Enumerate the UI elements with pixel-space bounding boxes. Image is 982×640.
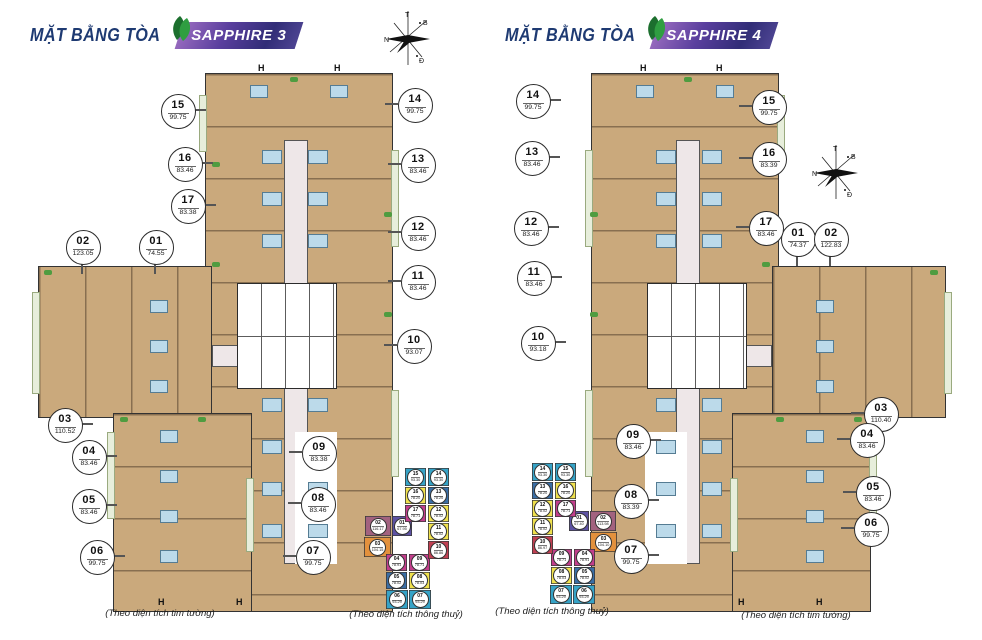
plan-core	[237, 283, 337, 389]
plan-bath	[262, 234, 282, 248]
tower-name: SAPPHIRE 4	[654, 22, 774, 49]
unit-circle-s4-16: 1683.39	[752, 142, 787, 177]
mini-unit-s4-05: 0578.02	[574, 567, 595, 584]
plan-core	[647, 283, 747, 389]
plan-bath	[702, 398, 722, 412]
mini-unit-number: 08	[417, 575, 423, 580]
plan-bath	[702, 524, 722, 538]
caption-thongthuy-s4: (Theo diện tích thông thuỷ)	[495, 606, 609, 617]
unit-area: 99.75	[87, 559, 108, 568]
leader-line	[388, 280, 401, 281]
mini-unit-s4-07: 0793.29	[550, 585, 572, 604]
plan-bath	[262, 150, 282, 164]
mini-unit-circle: 1178.02	[430, 523, 447, 540]
mini-unit-circle: 1678.20	[557, 482, 574, 499]
mini-unit-number: 09	[559, 552, 565, 557]
plan-bath	[308, 192, 328, 206]
leader-line	[283, 555, 296, 556]
unit-circle-s3-11: 1183.46	[401, 265, 436, 300]
mini-unit-circle: 0978.71	[411, 554, 428, 571]
mini-unit-s3-05: 0578.02	[386, 572, 407, 589]
unit-area: 99.75	[303, 559, 324, 568]
mini-unit-number: 07	[558, 589, 564, 594]
unit-area: 74.55	[146, 249, 167, 258]
unit-area: 99.75	[523, 103, 544, 112]
plan-bath	[806, 550, 824, 563]
unit-area: 93.18	[528, 345, 549, 354]
compass-label-d: Đ	[419, 58, 424, 65]
unit-circle-s3-17: 1783.38	[171, 189, 206, 224]
unit-area: 83.46	[408, 284, 429, 293]
mini-unit-number: 14	[540, 467, 546, 472]
mini-unit-number: 05	[582, 570, 588, 575]
mini-unit-number: 02	[600, 516, 606, 521]
mini-unit-number: 14	[436, 472, 442, 477]
hatch-mark: H	[334, 64, 341, 73]
mini-unit-circle: 1593.30	[557, 464, 574, 481]
unit-area: 83.46	[623, 443, 644, 452]
plan-plant	[384, 312, 392, 317]
mini-unit-area: 78.02	[434, 514, 444, 519]
mini-unit-circle: 1593.30	[407, 469, 424, 486]
unit-number: 08	[311, 493, 324, 504]
leader-line	[841, 527, 854, 528]
mini-unit-s4-09: 0978.71	[551, 549, 572, 566]
unit-number: 16	[178, 153, 191, 164]
mini-unit-s4-10: 1086.97	[532, 536, 553, 554]
unit-number: 05	[866, 482, 879, 493]
mini-unit-s4-13: 1378.20	[532, 482, 553, 499]
plan-balc	[107, 432, 115, 519]
plan-bath	[806, 510, 824, 523]
mini-unit-number: 12	[540, 503, 546, 508]
unit-area: 83.46	[524, 280, 545, 289]
mini-unit-number: 16	[563, 485, 569, 490]
mini-unit-area: 78.91	[392, 563, 402, 568]
compass-label-b: B	[851, 154, 856, 161]
mini-unit-circle: 0878.03	[553, 567, 570, 584]
mini-unit-area: 78.20	[411, 496, 421, 501]
mini-unit-s3-11: 1178.02	[428, 523, 449, 540]
unit-circle-s4-04: 0483.46	[850, 423, 885, 458]
unit-circle-s4-14: 1499.75	[516, 84, 551, 119]
leader-line	[837, 438, 850, 439]
plan-plant	[212, 162, 220, 167]
mini-unit-circle: 1493.30	[534, 464, 551, 481]
plan-bath	[656, 482, 676, 496]
mini-unit-circle: 1178.02	[534, 518, 551, 535]
unit-area: 123.05	[73, 249, 94, 258]
mini-unit-s4-16: 1678.20	[555, 482, 576, 499]
leader-line	[736, 226, 749, 227]
mini-unit-s3-13: 1378.20	[428, 487, 449, 504]
plan-bath	[806, 470, 824, 483]
unit-circle-s4-07: 0799.75	[614, 539, 649, 574]
unit-number: 17	[759, 217, 772, 228]
plan-bath	[308, 524, 328, 538]
unit-number: 07	[306, 546, 319, 557]
mini-unit-number: 04	[582, 552, 588, 557]
unit-number: 09	[626, 430, 639, 441]
unit-circle-s3-15: 1599.75	[161, 94, 196, 129]
mini-unit-circle: 1086.97	[534, 537, 551, 554]
mini-unit-number: 06	[581, 589, 587, 594]
plan-plant	[120, 417, 128, 422]
unit-number: 16	[762, 148, 775, 159]
mini-unit-s4-06: 0693.29	[573, 585, 595, 604]
unit-number: 06	[864, 518, 877, 529]
unit-circle-s4-15: 1599.75	[752, 90, 787, 125]
floorplan-page: MẶT BẰNG TÒA SAPPHIRE 3 MẶT BẰNG TÒA SAP…	[0, 0, 982, 640]
unit-circle-s4-13: 1383.46	[515, 141, 550, 176]
unit-area: 83.46	[522, 160, 543, 169]
plan-bath	[150, 300, 168, 313]
mini-unit-area: 78.20	[561, 491, 571, 496]
mini-unit-number: 11	[540, 521, 545, 526]
unit-number: 03	[874, 403, 887, 414]
mini-unit-number: 09	[417, 557, 423, 562]
mini-unit-number: 06	[394, 594, 400, 599]
mini-unit-number: 01	[399, 521, 405, 526]
plan-bath	[160, 550, 178, 563]
plan-slab	[113, 413, 252, 612]
unit-circle-s3-02: 02123.05	[66, 230, 101, 265]
plan-bath	[702, 192, 722, 206]
unit-area: 83.46	[408, 167, 429, 176]
leader-line	[739, 157, 752, 158]
compass-label-t: T	[405, 12, 410, 19]
mini-unit-s4-14: 1493.30	[532, 463, 553, 481]
unit-area: 83.39	[759, 161, 780, 170]
plan-balc	[32, 292, 40, 394]
plan-bath	[702, 150, 722, 164]
unit-circle-s4-09: 0983.46	[616, 424, 651, 459]
plan-bath	[702, 482, 722, 496]
hatch-mark: H	[158, 598, 165, 607]
plan-slab	[772, 266, 946, 418]
plan-bath	[702, 234, 722, 248]
unit-circle-s4-01: 0174.37	[781, 222, 816, 257]
mini-unit-s4-04: 0478.91	[574, 549, 595, 566]
mini-unit-circle: 1778.71	[407, 505, 424, 522]
header-sapphire-3: MẶT BẰNG TÒA SAPPHIRE 3	[30, 22, 299, 49]
mini-unit-s3-12: 1278.02	[428, 505, 449, 522]
leader-line	[843, 491, 856, 492]
mini-unit-area: 93.29	[392, 600, 402, 605]
unit-number: 11	[528, 267, 541, 278]
plan-balc	[199, 95, 207, 152]
unit-area: 74.37	[788, 241, 809, 250]
plan-bath	[656, 440, 676, 454]
mini-unit-s4-02: 02113.98	[590, 511, 616, 531]
plan-balc	[391, 390, 399, 477]
mini-unit-area: 78.02	[392, 581, 402, 586]
mini-unit-area: 67.95	[397, 526, 407, 531]
mini-unit-area: 93.30	[561, 472, 571, 477]
mini-unit-area: 78.03	[557, 576, 567, 581]
mini-unit-circle: 1678.20	[407, 487, 424, 504]
mini-unit-area: 78.71	[411, 514, 421, 519]
unit-number: 10	[531, 332, 544, 343]
unit-circle-s4-08: 0883.39	[614, 484, 649, 519]
plan-bath	[806, 430, 824, 443]
unit-circle-s3-07: 0799.75	[296, 540, 331, 575]
plan-bath	[816, 380, 834, 393]
plan-balc	[730, 478, 738, 552]
plan-bath	[160, 470, 178, 483]
unit-area: 83.38	[309, 455, 330, 464]
compass-label-b: B	[423, 20, 428, 27]
plan-bath	[702, 440, 722, 454]
mini-unit-number: 11	[436, 526, 441, 531]
tower-name: SAPPHIRE 3	[179, 22, 299, 49]
mini-unit-area: 78.02	[538, 509, 548, 514]
unit-number: 02	[824, 228, 837, 239]
unit-circle-s3-04: 0483.46	[72, 440, 107, 475]
unit-area: 93.07	[404, 348, 425, 357]
unit-number: 05	[82, 495, 95, 506]
caption-timtuong-s4: (Theo diện tích tim tường)	[741, 610, 850, 621]
leader-line	[288, 502, 301, 503]
hatch-mark: H	[640, 64, 647, 73]
mini-unit-circle: 1278.02	[430, 505, 447, 522]
plan-balc	[246, 478, 254, 552]
mini-unit-s3-08: 0878.03	[409, 572, 430, 589]
unit-circle-s3-13: 1383.46	[401, 148, 436, 183]
unit-area: 83.46	[756, 230, 777, 239]
plan-bath	[250, 85, 268, 98]
unit-area: 83.46	[857, 442, 878, 451]
title-prefix: MẶT BẰNG TÒA	[30, 25, 160, 46]
unit-area: 110.52	[55, 427, 76, 436]
unit-number: 15	[171, 100, 184, 111]
plan-bath	[262, 192, 282, 206]
mini-unit-s3-16: 1678.20	[405, 487, 426, 504]
mini-unit-number: 13	[540, 485, 546, 490]
mini-unit-area: 86.86	[434, 550, 444, 555]
leader-line	[384, 344, 397, 345]
unit-circle-s3-14: 1499.75	[398, 88, 433, 123]
plan-plant	[762, 262, 770, 267]
title-banner: SAPPHIRE 3	[179, 22, 299, 49]
unit-circle-s4-12: 1283.46	[514, 211, 549, 246]
mini-unit-number: 10	[436, 545, 442, 550]
unit-circle-s3-10: 1093.07	[397, 329, 432, 364]
unit-number: 01	[791, 228, 804, 239]
plan-bath	[150, 340, 168, 353]
title-banner: SAPPHIRE 4	[654, 22, 774, 49]
unit-area: 83.46	[308, 506, 329, 515]
plan-plant	[44, 270, 52, 275]
plan-bath	[656, 234, 676, 248]
leaf-icon	[171, 14, 193, 42]
mini-unit-area: 116.17	[372, 526, 383, 531]
mini-unit-circle: 02113.98	[595, 513, 612, 530]
unit-circle-s4-05: 0583.46	[856, 476, 891, 511]
plan-bath	[308, 150, 328, 164]
unit-number: 11	[412, 271, 425, 282]
mini-unit-circle: 02116.17	[370, 518, 387, 535]
mini-unit-area: 78.20	[538, 491, 548, 496]
plan-bath	[160, 510, 178, 523]
mini-unit-circle: 1378.20	[430, 487, 447, 504]
mini-unit-s3-15: 1593.30	[405, 468, 426, 486]
plan-plant	[590, 312, 598, 317]
unit-circle-s3-08: 0883.46	[301, 487, 336, 522]
leaf-icon	[646, 14, 668, 42]
mini-unit-s3-09: 0978.71	[409, 554, 430, 571]
mini-unit-s4-12: 1278.02	[532, 500, 553, 517]
mini-unit-number: 13	[436, 490, 442, 495]
plan-plant	[198, 417, 206, 422]
title-prefix: MẶT BẰNG TÒA	[505, 25, 635, 46]
plan-balc	[585, 390, 593, 477]
mini-unit-number: 05	[394, 575, 400, 580]
plan-bath	[262, 482, 282, 496]
compass-label-d: Đ	[847, 192, 852, 199]
mini-unit-area: 78.71	[561, 509, 571, 514]
mini-unit-circle: 03104.10	[595, 534, 612, 551]
plan-plant	[930, 270, 938, 275]
mini-unit-area: 104.10	[598, 542, 610, 547]
unit-area: 83.46	[863, 495, 884, 504]
unit-number: 14	[526, 90, 539, 101]
unit-circle-s3-05: 0583.46	[72, 489, 107, 524]
unit-area: 83.46	[79, 459, 100, 468]
caption-thongthuy-s3: (Theo diện tích thông thuỷ)	[349, 609, 463, 620]
mini-unit-number: 07	[417, 594, 423, 599]
mini-unit-s4-11: 1178.02	[532, 518, 553, 535]
plan-bath	[816, 340, 834, 353]
mini-unit-area: 78.20	[434, 496, 444, 501]
leader-line	[385, 103, 398, 104]
mini-unit-number: 08	[559, 570, 565, 575]
mini-unit-circle: 1086.86	[430, 542, 447, 559]
mini-unit-circle: 1778.71	[557, 500, 574, 517]
plan-bath	[656, 150, 676, 164]
mini-unit-s3-02: 02116.17	[365, 516, 391, 536]
plan-bath	[656, 398, 676, 412]
plan-bath	[716, 85, 734, 98]
unit-area: 99.75	[168, 113, 189, 122]
unit-number: 07	[624, 545, 637, 556]
mini-unit-circle: 1278.02	[534, 500, 551, 517]
unit-number: 01	[149, 236, 162, 247]
mini-unit-area: 93.29	[415, 600, 425, 605]
unit-area: 83.46	[521, 230, 542, 239]
hatch-mark: H	[816, 598, 823, 607]
mini-unit-area: 104.15	[372, 547, 384, 552]
mini-unit-circle: 1378.20	[534, 482, 551, 499]
mini-unit-circle: 0878.03	[411, 572, 428, 589]
unit-number: 15	[762, 96, 775, 107]
mini-unit-s3-17: 1778.71	[405, 505, 426, 522]
unit-area: 83.46	[79, 508, 100, 517]
unit-circle-s4-11: 1183.46	[517, 261, 552, 296]
mini-unit-circle: 0578.02	[388, 572, 405, 589]
unit-number: 12	[411, 222, 424, 233]
unit-number: 06	[90, 546, 103, 557]
plan-plant	[384, 212, 392, 217]
unit-area: 99.75	[405, 107, 426, 116]
mini-unit-area: 86.97	[538, 545, 548, 550]
plan-bath	[816, 300, 834, 313]
mini-unit-number: 02	[375, 521, 381, 526]
unit-circle-s4-17: 1783.46	[749, 211, 784, 246]
mini-unit-number: 03	[375, 542, 381, 547]
mini-unit-number: 17	[413, 508, 419, 513]
leader-line	[739, 105, 752, 106]
mini-unit-number: 01	[576, 516, 582, 521]
unit-number: 08	[624, 490, 637, 501]
unit-circle-s3-01: 0174.55	[139, 230, 174, 265]
mini-unit-s4-17: 1778.71	[555, 500, 576, 517]
mini-unit-s3-07: 0793.29	[409, 590, 431, 609]
mini-unit-circle: 0693.29	[576, 586, 593, 603]
unit-circle-s3-12: 1283.46	[401, 216, 436, 251]
compass-rose: T B N Đ	[384, 8, 432, 68]
mini-unit-s3-10: 1086.86	[428, 541, 449, 559]
mini-unit-area: 78.03	[415, 581, 425, 586]
plan-bath	[330, 85, 348, 98]
mini-unit-number: 10	[540, 540, 546, 545]
unit-number: 12	[524, 217, 537, 228]
plan-slab	[38, 266, 212, 418]
hatch-mark: H	[258, 64, 265, 73]
mini-unit-area: 78.91	[580, 558, 590, 563]
unit-area: 83.39	[621, 503, 642, 512]
mini-unit-area: 113.98	[597, 521, 608, 526]
mini-unit-number: 12	[436, 508, 442, 513]
mini-unit-circle: 0978.71	[553, 549, 570, 566]
hatch-mark: H	[738, 598, 745, 607]
mini-unit-circle: 0478.91	[388, 554, 405, 571]
plan-bath	[308, 398, 328, 412]
unit-number: 14	[408, 94, 421, 105]
mini-unit-circle: 0793.29	[553, 586, 570, 603]
mini-unit-area: 93.30	[434, 477, 444, 482]
mini-unit-number: 04	[394, 557, 400, 562]
mini-unit-area: 93.30	[411, 477, 421, 482]
compass-label-t: T	[833, 146, 838, 153]
mini-unit-s4-15: 1593.30	[555, 463, 576, 481]
plan-bath	[636, 85, 654, 98]
plan-plant	[212, 262, 220, 267]
mini-unit-area: 78.71	[557, 558, 567, 563]
mini-unit-number: 17	[563, 503, 569, 508]
leader-line	[289, 451, 302, 452]
plan-bath	[150, 380, 168, 393]
unit-number: 04	[82, 446, 95, 457]
leader-line	[388, 231, 401, 232]
mini-unit-circle: 0693.29	[389, 591, 406, 608]
unit-number: 03	[58, 414, 71, 425]
caption-timtuong-s3: (Theo diện tích tim tường)	[105, 608, 214, 619]
compass-label-n: N	[812, 171, 817, 178]
mini-unit-number: 03	[601, 537, 607, 542]
mini-unit-area: 78.02	[580, 576, 590, 581]
compass-rose: T B N Đ	[812, 142, 860, 202]
unit-circle-s4-06: 0699.75	[854, 512, 889, 547]
mini-unit-circle: 1493.30	[430, 469, 447, 486]
mini-unit-s4-08: 0878.03	[551, 567, 572, 584]
mini-unit-area: 67.40	[574, 521, 584, 526]
plan-plant	[590, 212, 598, 217]
unit-area: 99.75	[861, 531, 882, 540]
plan-bath	[656, 524, 676, 538]
plan-balc	[944, 292, 952, 394]
leader-line	[388, 163, 401, 164]
